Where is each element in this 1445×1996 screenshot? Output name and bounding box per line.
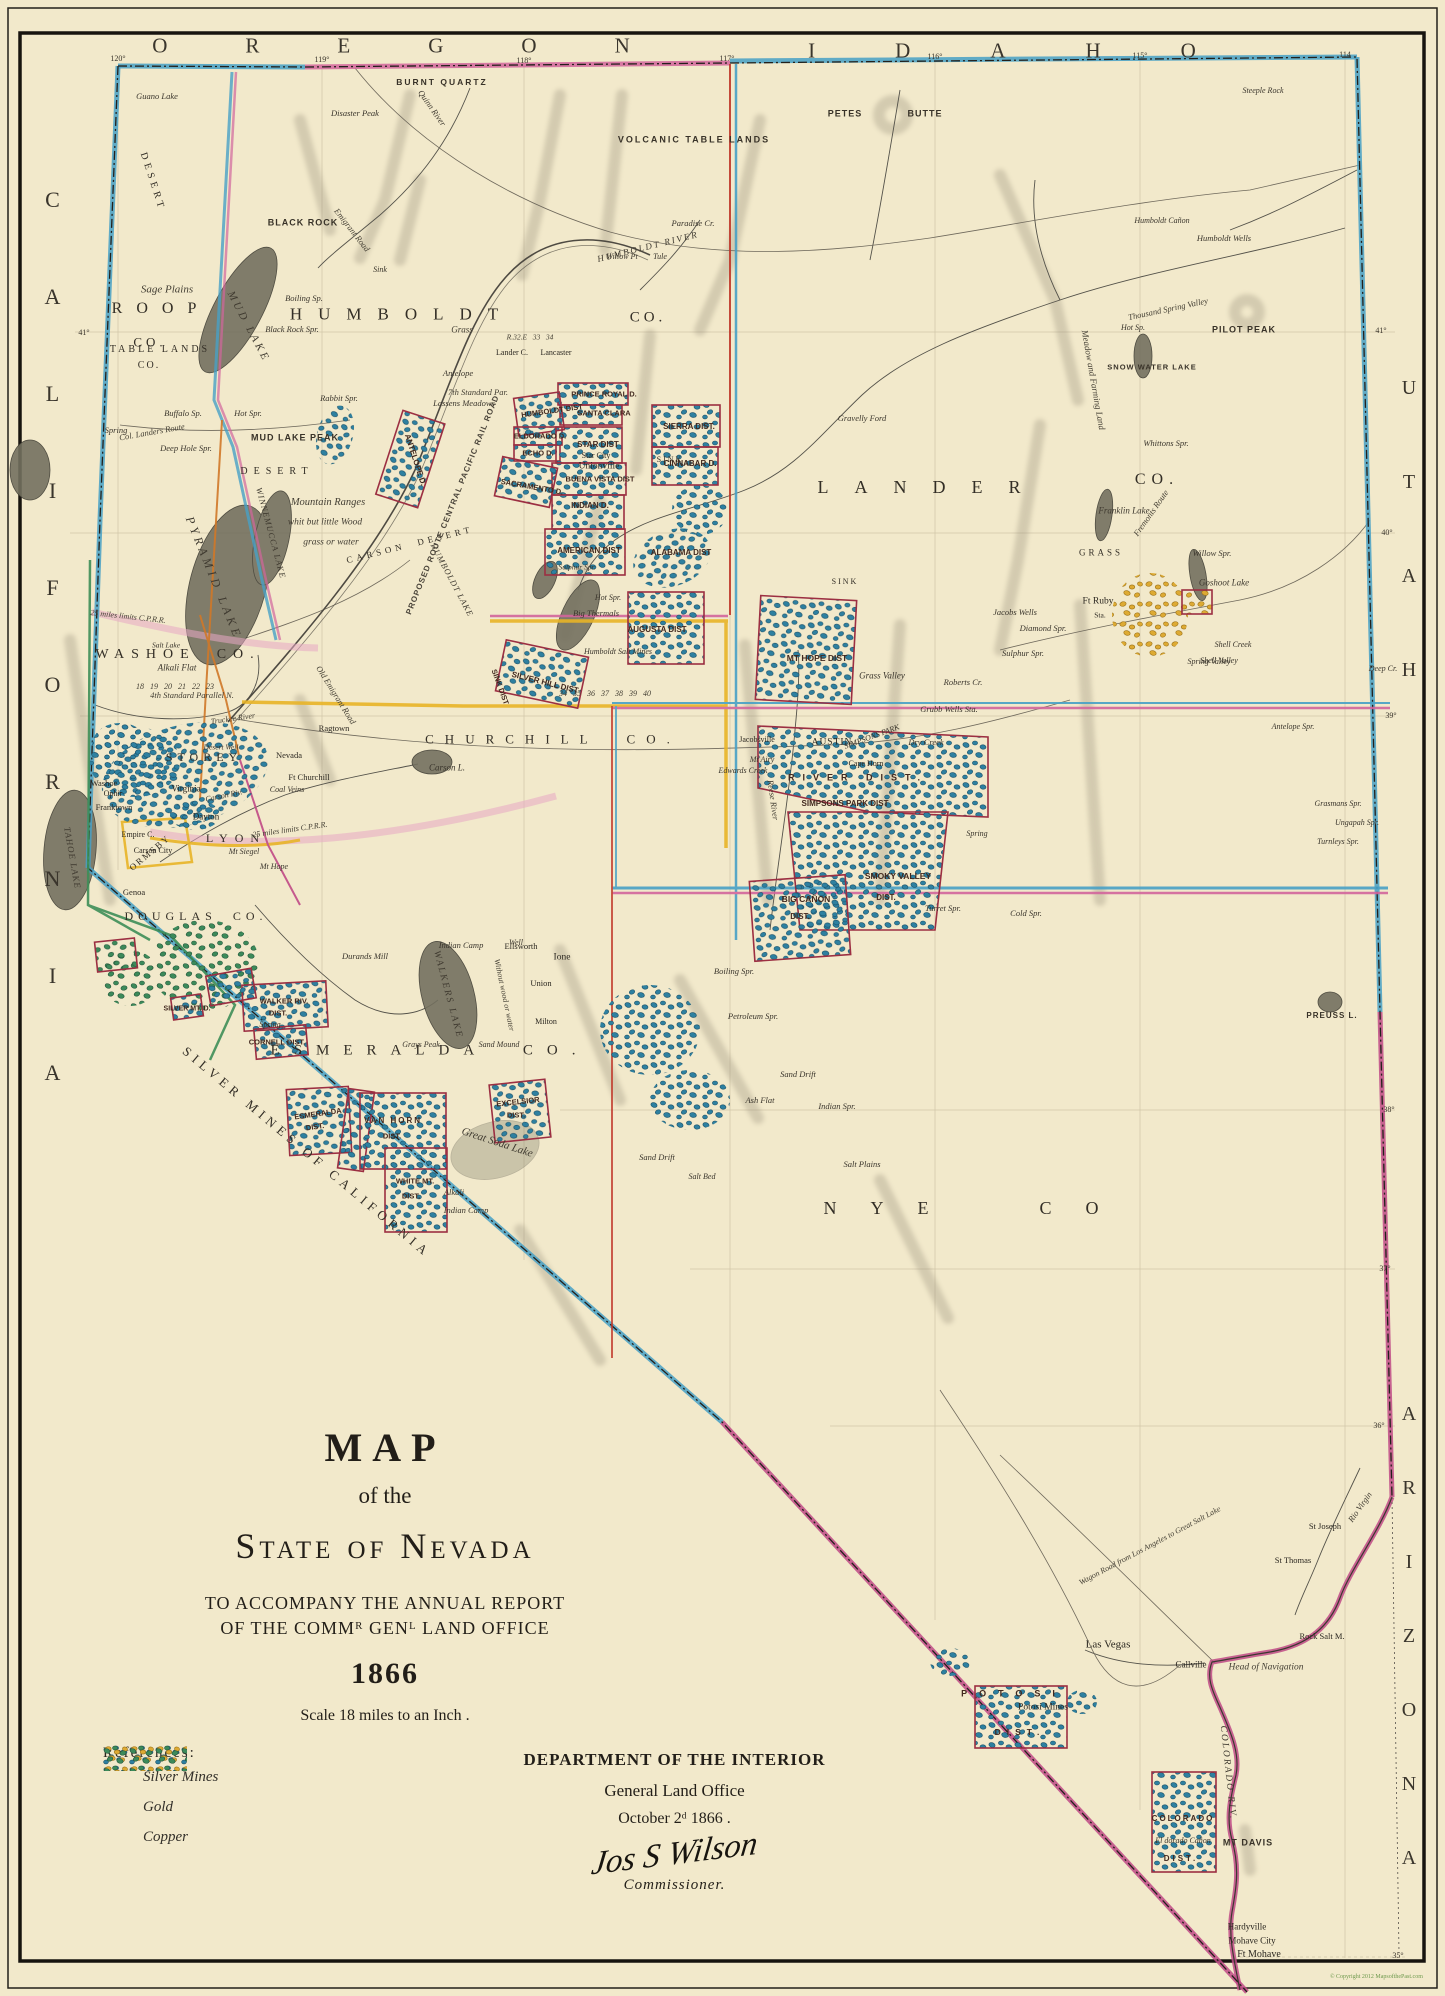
map-label: Salt Bed <box>689 1173 716 1181</box>
map-label: Nevada <box>276 751 302 760</box>
map-label: BURNT QUARTZ <box>396 78 488 87</box>
map-label: grass or water <box>303 538 358 548</box>
map-label: INDIAN D. <box>571 502 609 510</box>
map-label: DIST. <box>305 1122 324 1132</box>
map-label: 119° <box>315 56 330 64</box>
map-label: CO. <box>1135 472 1179 488</box>
map-label: BLACK ROCK <box>268 219 339 228</box>
map-label: Grass Valley <box>859 672 905 681</box>
map-label: Sta. <box>1094 611 1105 619</box>
map-title-ofthe: of the <box>190 1483 580 1509</box>
county-label-washoe: WASHOE CO. <box>95 648 260 662</box>
map-label: SNOW WATER LAKE <box>1107 363 1196 371</box>
state-label-idaho: IDAHO <box>808 41 1276 62</box>
map-label: SINK <box>832 578 859 586</box>
map-scale-note: Scale 18 miles to an Inch . <box>190 1707 580 1725</box>
map-label: Great Soda Lake <box>460 1126 534 1159</box>
map-label: Petroleum Spr. <box>728 1012 778 1021</box>
map-label: Old Emigrant Road <box>315 664 358 725</box>
map-label: Lassens Meadows <box>433 399 495 408</box>
state-label-utah: UTAH <box>1399 377 1419 753</box>
map-label: SACRAMENTO D. <box>500 478 564 496</box>
map-label: Head of Navigation <box>1229 1663 1304 1673</box>
map-label: EXCELSIOR <box>496 1096 540 1108</box>
town-austin: AUSTIN <box>812 738 853 748</box>
map-label: El dorado Cañon <box>1155 1837 1211 1845</box>
border-label-silver-mines: SILVER MINES OF CALIFORNIA <box>180 1044 433 1260</box>
map-label: TAHOE LAKE <box>62 826 82 889</box>
map-label: Col. Landers Route <box>119 422 186 442</box>
county-label-table-lands: TABLE LANDS <box>110 345 210 355</box>
legend: References: Silver Mines Gold Copper <box>103 1745 373 1852</box>
map-label: Hot Sp. <box>1121 324 1145 332</box>
map-label: Sink <box>373 266 387 274</box>
map-label: Truckee River <box>210 712 255 726</box>
map-label: Coal Veins <box>270 786 304 794</box>
map-label: Grubb Wells Sta. <box>920 705 978 714</box>
map-label: Wagon Road from Los Angeles to Great Sal… <box>1078 1505 1222 1587</box>
map-label: Indian Camp <box>439 941 484 950</box>
legend-label: Silver Mines <box>143 1769 218 1786</box>
map-label: Boiling Spr. <box>714 967 754 976</box>
legend-item-copper: Copper <box>121 1822 373 1852</box>
map-label: Turret Spr. <box>925 904 961 913</box>
map-label: STAR DIST <box>577 441 619 449</box>
map-label: Sage Plains <box>141 285 193 296</box>
map-label: Without wood or water <box>492 958 515 1032</box>
county-label-nye: NYE CO <box>824 1199 1133 1217</box>
map-label: WHITE MT. <box>396 1177 434 1185</box>
map-label: Hardyville <box>1228 1923 1267 1932</box>
map-year: 1866 <box>190 1657 580 1691</box>
map-label: VOLCANIC TABLE LANDS <box>618 136 770 145</box>
map-label: Durands Mill <box>342 952 388 961</box>
map-label: Reese River <box>766 779 780 820</box>
map-label: 114 <box>1339 51 1351 59</box>
map-label: MT HOPE DIST <box>787 654 847 663</box>
map-label: Willow Pt <box>606 253 637 261</box>
map-label: Desert Well <box>204 743 239 751</box>
map-label: Mt Airy <box>750 756 775 764</box>
map-label: Ft Churchill <box>288 773 329 782</box>
map-label: Empire C. <box>122 831 155 839</box>
map-canvas: OREGONIDAHOCALIFORNIAUTAHARIZONAROOPCO.T… <box>0 0 1445 1996</box>
map-label: DIST. <box>507 1111 525 1119</box>
map-label: DIST. <box>876 894 896 902</box>
map-label: DIST. <box>790 913 810 921</box>
map-label: Thousand Spring Valley <box>1127 296 1208 321</box>
map-label: PETES <box>828 110 863 119</box>
map-label: COLORADO RIV. <box>1217 1725 1236 1820</box>
map-label: Hot Spr. <box>595 594 621 602</box>
map-label: Tule <box>653 253 667 261</box>
map-label: Ragtown <box>319 724 350 733</box>
map-label: Shell Valley <box>1200 657 1238 665</box>
map-label: Sulphur Spr. <box>558 563 595 571</box>
town-virginia: Virginia <box>171 785 200 794</box>
map-label: CO. <box>630 311 667 326</box>
map-label: Rock Salt M. <box>1299 1632 1344 1641</box>
map-label: 35° <box>1392 1952 1403 1960</box>
map-label: Paradise Cr. <box>672 219 715 228</box>
map-label: HUMBOLDT DIST <box>521 403 584 419</box>
map-label: Sand Drift <box>639 1153 675 1162</box>
map-label: Deep Cr. <box>1369 665 1397 673</box>
legend-label: Copper <box>143 1829 188 1846</box>
map-label: 120° <box>110 55 125 63</box>
map-label: Mohave City <box>1228 1937 1275 1946</box>
map-label: 25 miles limits C.P.R.R. <box>90 609 166 625</box>
map-label: SINK DIST <box>490 668 510 705</box>
imprint-office: General Land Office <box>492 1781 857 1801</box>
map-label: DIST. <box>402 1192 420 1200</box>
map-label: Sulphur Spr. <box>1002 649 1044 658</box>
map-label: Rabbit Spr. <box>320 394 358 403</box>
map-subtitle-line1: TO ACCOMPANY THE ANNUAL REPORT <box>190 1593 580 1614</box>
copper-swatch-icon <box>103 1745 187 1771</box>
map-label: 36° <box>1373 1422 1384 1430</box>
map-label: SILVER MT. D. <box>164 1006 211 1013</box>
map-label: 117° <box>720 55 735 63</box>
map-label: Antelope <box>443 369 473 378</box>
map-label: Jacobs Wells <box>993 608 1037 617</box>
map-label: PILOT PEAK <box>1212 326 1276 335</box>
state-label-arizona: ARIZONA <box>1399 1403 1419 1921</box>
map-label: GRASS <box>1079 549 1123 558</box>
map-label: 37° <box>1379 1265 1390 1273</box>
county-label-churchill: CHURCHILL CO. <box>425 733 681 746</box>
map-label: Buffalo Sp. <box>164 409 202 418</box>
map-label: Alkali Flat <box>158 664 197 673</box>
map-label: ELDORADO D. <box>514 432 567 440</box>
map-label: Callville <box>1176 1661 1207 1670</box>
state-label-oregon: OREGON <box>152 36 708 57</box>
map-label: BIG CAÑON <box>782 895 831 904</box>
map-label: SIMPSONS PARK DIST <box>802 800 889 808</box>
map-label: 38° <box>1383 1106 1394 1114</box>
map-label: Spring <box>966 830 987 838</box>
map-label: Well <box>509 939 523 947</box>
map-label: ALABAMA DIST <box>651 549 712 557</box>
map-label: Shell Creek <box>1215 641 1252 649</box>
map-label: PREUSS L. <box>1306 1012 1357 1020</box>
county-label-lander: LANDER <box>818 478 1047 496</box>
legend-item-gold: Gold <box>121 1792 373 1822</box>
town-carson-city: Carson City <box>134 847 172 855</box>
map-label: Rio Virgin <box>1347 1490 1374 1523</box>
map-label: Potosi Mines <box>1018 1703 1068 1713</box>
state-label-california: CALIFORNIA <box>41 187 63 1157</box>
map-label: Salt Lake <box>152 641 180 649</box>
map-label: Humboldt Wells <box>1197 234 1251 243</box>
map-label: AMERICAN DIST <box>557 547 621 555</box>
map-label: BUENA VISTA DIST <box>566 475 635 483</box>
map-label: Salt Plains <box>843 1160 880 1169</box>
map-label: Boiling Sp. <box>285 294 323 303</box>
map-label: WALKER RIV. <box>260 997 308 1005</box>
map-label: Steeple Rock <box>1242 87 1283 95</box>
map-label: Star City <box>582 452 611 460</box>
map-label: Genoa <box>123 888 145 897</box>
imprint-block: DEPARTMENT OF THE INTERIOR General Land … <box>492 1750 857 1894</box>
map-label: Lander C. <box>496 349 528 357</box>
map-title-word: MAP <box>190 1424 580 1471</box>
map-label: Sand Mound <box>479 1041 520 1049</box>
map-label: 41° <box>78 329 89 337</box>
county-label-douglas: DOUGLAS CO. <box>124 910 267 922</box>
county-label-humboldt: HUMBOLDT <box>290 306 514 323</box>
map-label: 115° <box>1133 52 1148 60</box>
map-label: Whittons Spr. <box>1143 439 1188 448</box>
map-label: Disaster Peak <box>331 109 379 118</box>
map-label: MT DAVIS <box>1223 1839 1273 1848</box>
map-label: Union <box>530 979 551 988</box>
imprint-department: DEPARTMENT OF THE INTERIOR <box>492 1750 857 1770</box>
map-label: CORNELL DIST. <box>249 1038 306 1046</box>
map-label: Indian Spr. <box>818 1102 855 1111</box>
map-label: CARSON DESERT <box>346 525 475 565</box>
map-label: Ophir <box>104 790 123 798</box>
map-label: Cold Spr. <box>1010 909 1042 918</box>
map-label: Grays Peak <box>402 1041 440 1049</box>
map-label: Roberts Cr. <box>944 678 983 687</box>
map-title-state: State of Nevada <box>190 1525 580 1567</box>
map-label: Sand Drift <box>780 1070 816 1079</box>
map-label: Mt Siegel <box>229 848 259 856</box>
map-label: Deep Hole Spr. <box>160 444 212 453</box>
copyright-note: © Copyright 2012 MapsofthePast.com <box>1330 1974 1423 1980</box>
map-label: Gravelly Ford <box>838 414 887 423</box>
map-label: DESERT <box>138 151 166 212</box>
map-label: Meadow and Farming Land <box>1080 329 1106 430</box>
map-label: PRINCE ROYAL D. <box>571 390 636 398</box>
legend-label: Gold <box>143 1799 173 1816</box>
map-label: Ungapah Spr. <box>1335 819 1379 827</box>
map-label: Jacobsville <box>739 736 775 744</box>
map-label: 34 35 36 37 38 39 40 <box>559 690 651 698</box>
map-label: 40° <box>1381 529 1392 537</box>
map-label: Spring <box>259 1021 280 1029</box>
map-label: R.32.E 33 34 <box>507 333 554 341</box>
map-label: whit but little Wood <box>288 518 362 528</box>
map-subtitle-line2: OF THE COMMᴿ GENᴸ LAND OFFICE <box>190 1618 580 1639</box>
map-label: Antelope Spr. <box>1272 723 1315 731</box>
map-label: Edwards Creek <box>719 767 768 775</box>
map-label: Milton <box>535 1018 557 1026</box>
map-label: Unionville <box>579 462 620 472</box>
map-label: SANTA CLARA <box>577 409 630 417</box>
map-label: WALKERS LAKE <box>431 950 464 1040</box>
county-label-roop: ROOP <box>112 301 211 317</box>
map-label: Ft Mohave <box>1237 1950 1281 1960</box>
map-label: Hot Spr. <box>234 409 262 418</box>
map-label: SINK <box>657 456 684 464</box>
map-label: SMOKY VALLEY <box>865 872 931 881</box>
map-label: Dayton <box>193 813 220 822</box>
map-label: ESMERALDA <box>294 1107 342 1121</box>
map-label: SIERRA DIST. <box>663 423 715 431</box>
map-label: 7th Standard Par. <box>448 388 508 397</box>
map-label: WINNEMUCCA LAKE <box>255 487 288 580</box>
map-label: POTOSI <box>961 1690 1067 1699</box>
map-label: Grasmans Spr. <box>1314 800 1361 808</box>
map-label: Lancaster <box>540 349 571 357</box>
map-label: CO. <box>138 361 160 371</box>
map-label: DIST. <box>383 1132 401 1140</box>
map-label: St Joseph <box>1309 1522 1341 1531</box>
map-label: Ione <box>554 953 571 963</box>
map-label: Willow Spr. <box>1193 549 1232 558</box>
map-label: Emigrant Road <box>333 207 372 253</box>
map-label: Humboldt Salt Mines <box>584 648 652 656</box>
map-label: Mountain Ranges <box>291 498 365 509</box>
map-label: MUD LAKE PEAK <box>251 434 339 443</box>
map-label: 18 19 20 21 22 23 <box>136 683 214 691</box>
map-label: DESERT <box>240 467 313 477</box>
map-label: Indian Camp <box>444 1206 489 1215</box>
map-label: DIST. <box>1164 1855 1199 1863</box>
town-las-vegas: Las Vegas <box>1086 1640 1131 1651</box>
county-label-storey: STOREY <box>166 751 242 763</box>
map-label: Dry Creek <box>908 738 943 747</box>
map-label: Franklin Lake <box>1098 507 1149 516</box>
map-label: Guano Lake <box>136 92 178 101</box>
map-label: Humboldt Cañon <box>1134 217 1189 225</box>
map-label: DIST. <box>995 1728 1046 1737</box>
map-label: Carson Riv. <box>205 788 243 804</box>
map-label: Franktown <box>96 803 133 812</box>
map-label: Diamond Spr. <box>1020 624 1067 633</box>
map-label: Black Rock Spr. <box>265 325 319 334</box>
map-label: DIST. <box>269 1009 287 1017</box>
title-block: MAP of the State of Nevada TO ACCOMPANY … <box>190 1424 580 1725</box>
map-label: 4th Standard Parallel N. <box>150 691 234 700</box>
map-label: Big Thermals <box>573 609 619 618</box>
map-label: Ash Flat <box>745 1096 774 1105</box>
map-label: AUGUSTA DIST <box>627 626 686 634</box>
map-label: 116° <box>928 53 943 61</box>
map-label: Quinn River <box>417 88 448 127</box>
map-label: VAN HORN <box>364 1117 422 1125</box>
map-label: PYRAMID LAKE <box>184 515 244 642</box>
map-label: St Thomas <box>1275 1556 1311 1565</box>
map-label: Cape Horn <box>849 760 884 768</box>
map-label: Grass <box>451 326 473 335</box>
map-label: Ft Ruby <box>1083 597 1114 607</box>
map-label: 118° <box>517 57 532 65</box>
map-label: ANTELOPE D. <box>403 433 427 487</box>
map-label: 25 miles limits C.P.R.R. <box>252 821 328 839</box>
map-label: Turnleys Spr. <box>1317 838 1359 846</box>
map-label: Carson L. <box>429 764 465 773</box>
map-label: Mt Hope <box>260 863 288 871</box>
map-label: BUTTE <box>908 110 943 119</box>
map-label: 41° <box>1375 327 1386 335</box>
map-label: ECHO D. <box>522 449 553 457</box>
map-label: Alkali <box>444 1188 464 1197</box>
map-label: Washoe <box>91 779 118 788</box>
map-label: Goshoot Lake <box>1199 579 1249 588</box>
map-label: COLORADO <box>1152 1815 1215 1823</box>
map-label: 39° <box>1385 712 1396 720</box>
map-label: RIVER DIST. <box>788 774 928 783</box>
